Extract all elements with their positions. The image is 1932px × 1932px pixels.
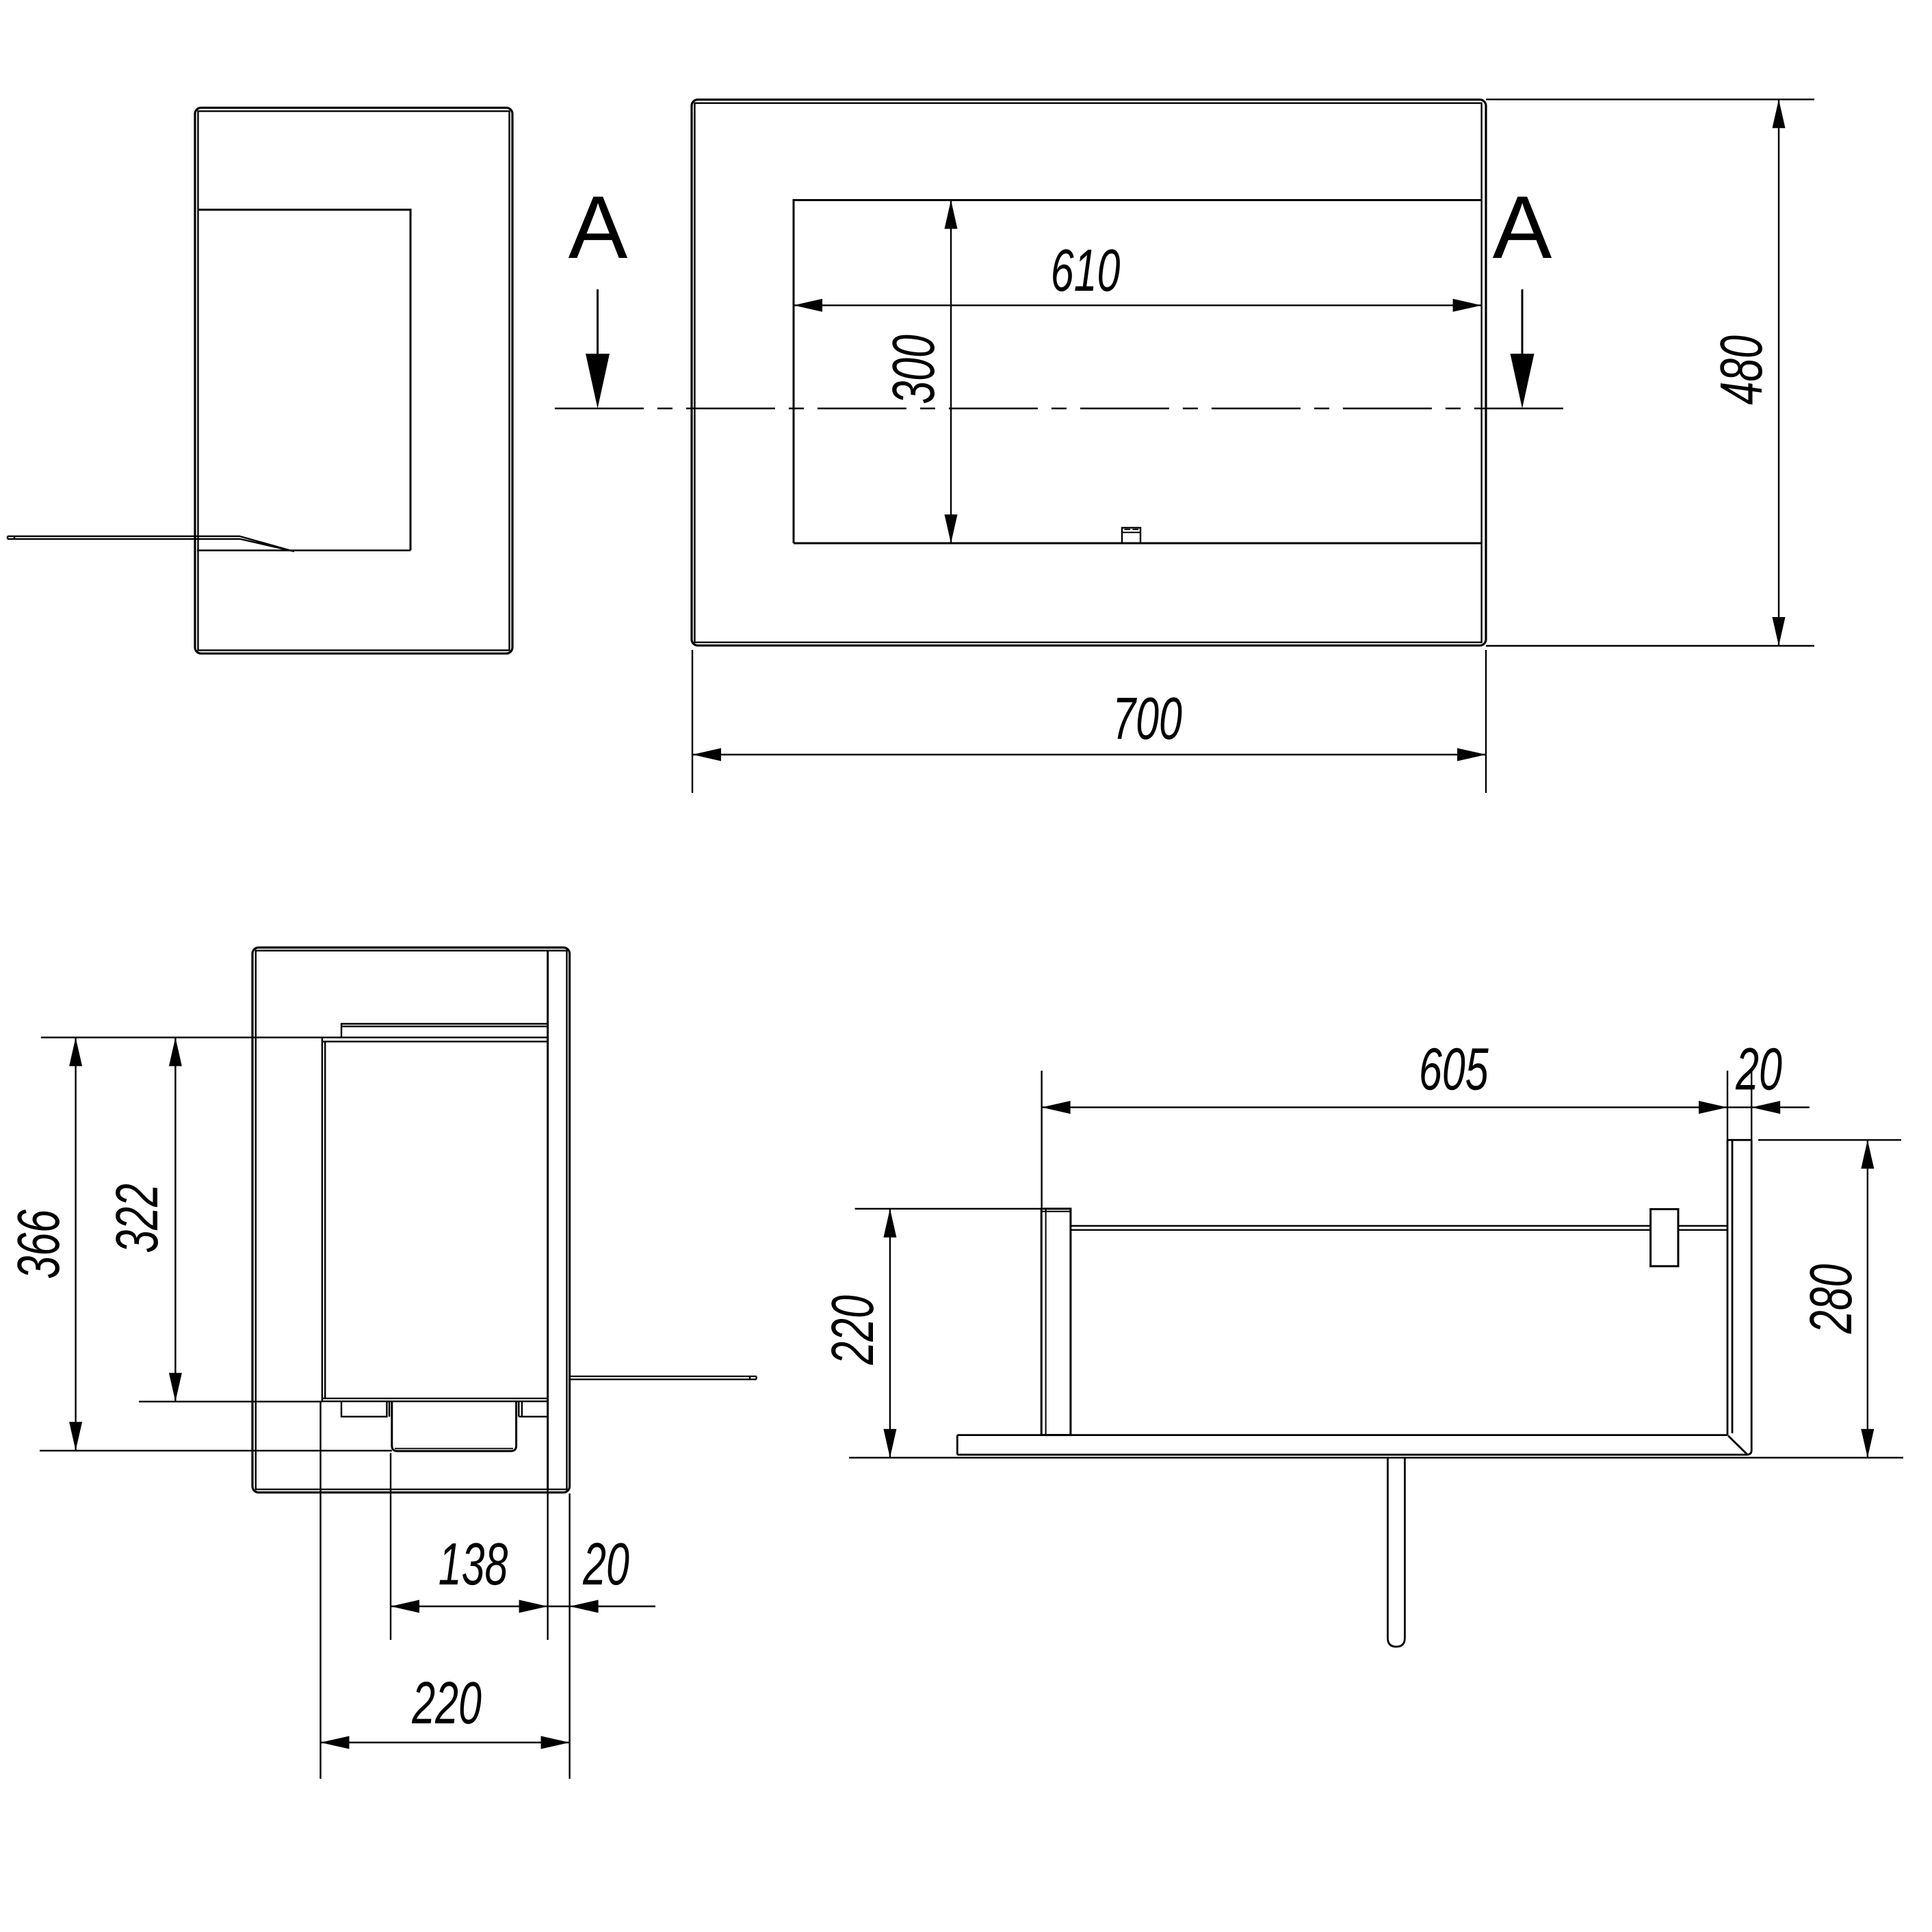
svg-text:220: 220 xyxy=(411,1669,482,1736)
svg-text:A: A xyxy=(1493,177,1552,277)
svg-text:300: 300 xyxy=(880,335,946,404)
svg-text:700: 700 xyxy=(1112,685,1182,751)
svg-text:138: 138 xyxy=(439,1530,508,1597)
svg-text:322: 322 xyxy=(103,1184,170,1253)
svg-text:A: A xyxy=(569,177,628,277)
svg-text:480: 480 xyxy=(1708,335,1774,405)
svg-text:366: 366 xyxy=(5,1210,71,1279)
svg-text:20: 20 xyxy=(582,1530,629,1597)
svg-text:20: 20 xyxy=(1735,1036,1782,1102)
svg-text:610: 610 xyxy=(1051,237,1121,303)
svg-text:220: 220 xyxy=(819,1295,885,1366)
svg-text:605: 605 xyxy=(1419,1036,1489,1102)
svg-text:280: 280 xyxy=(1797,1264,1864,1335)
